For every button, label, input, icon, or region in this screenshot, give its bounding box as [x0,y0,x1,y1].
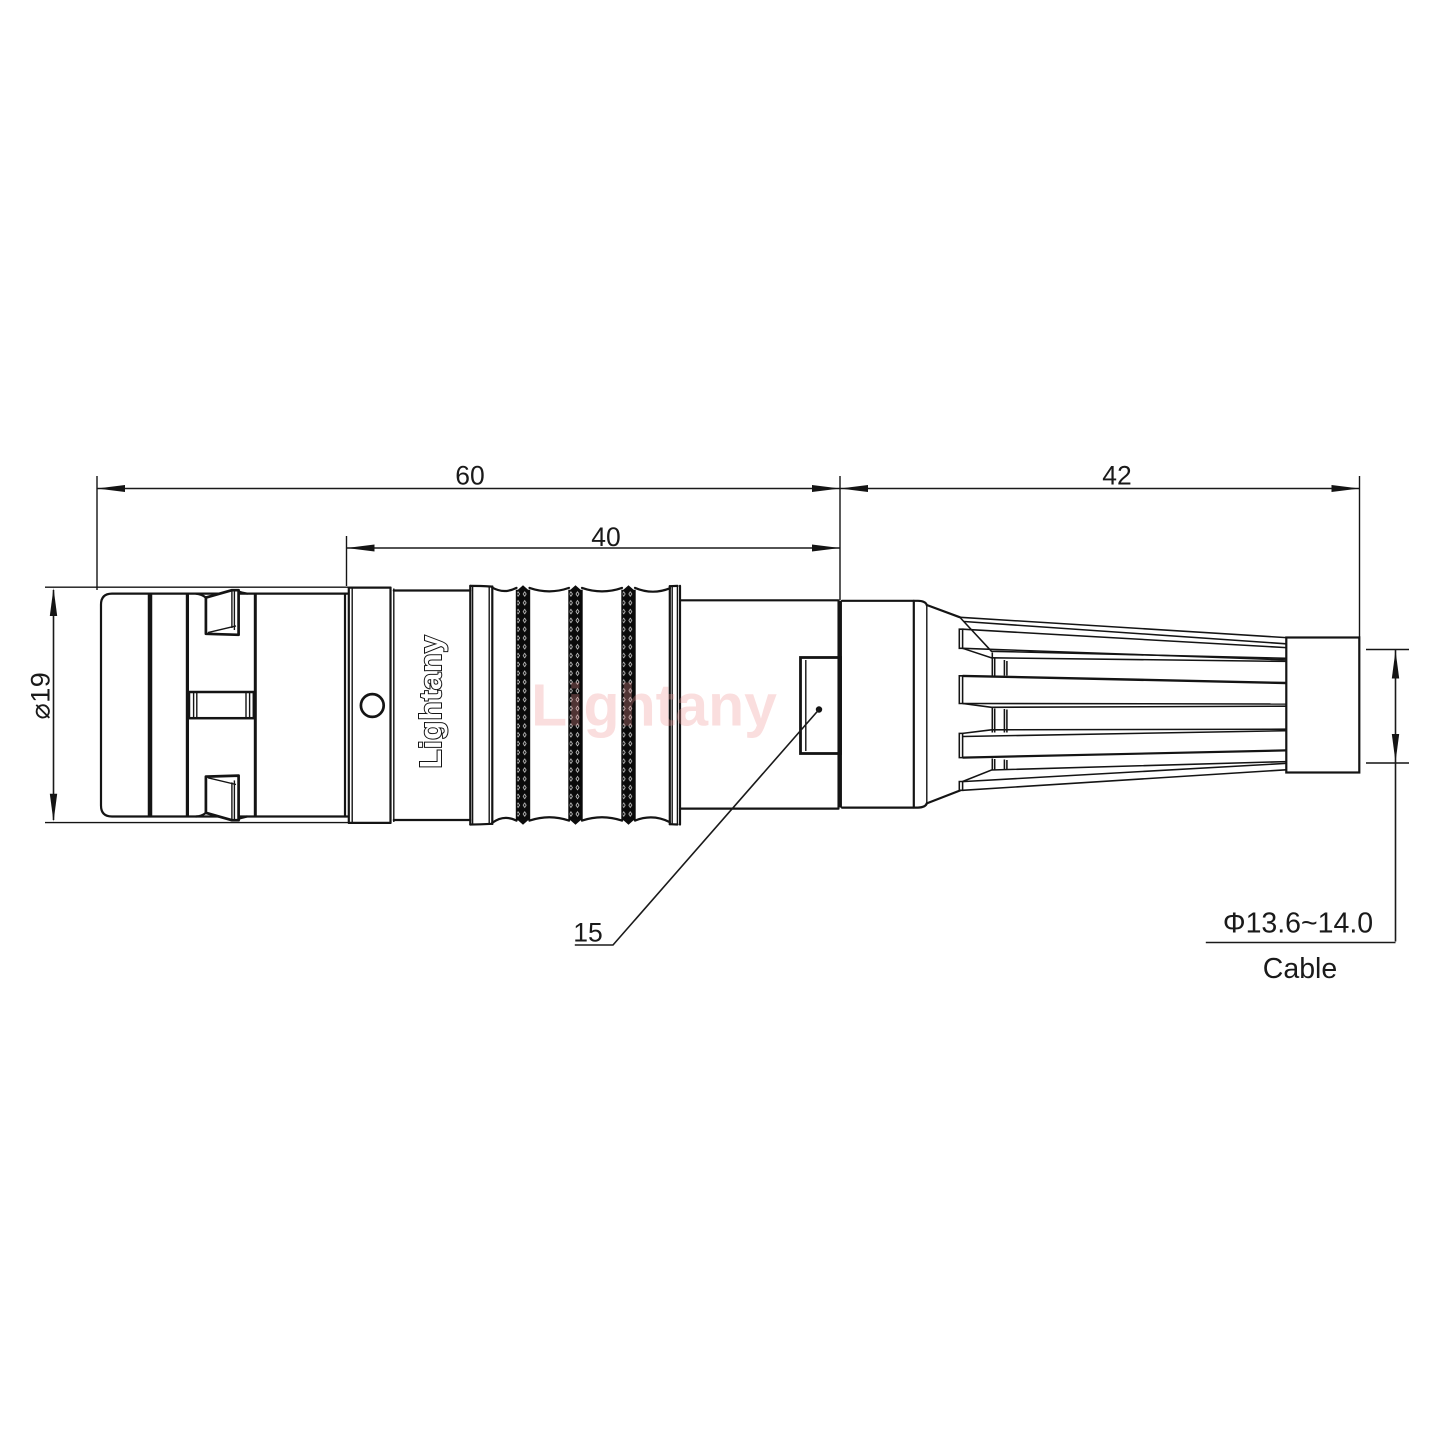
svg-text:15: 15 [573,918,602,948]
svg-text:Φ13.6~14.0: Φ13.6~14.0 [1223,908,1373,940]
svg-text:⌀19: ⌀19 [26,672,56,720]
svg-text:Lightany: Lightany [531,673,777,739]
svg-text:Lightany: Lightany [413,635,448,769]
svg-text:60: 60 [455,461,484,491]
svg-text:42: 42 [1102,461,1131,491]
svg-text:40: 40 [591,522,620,552]
svg-text:Cable: Cable [1263,953,1337,985]
